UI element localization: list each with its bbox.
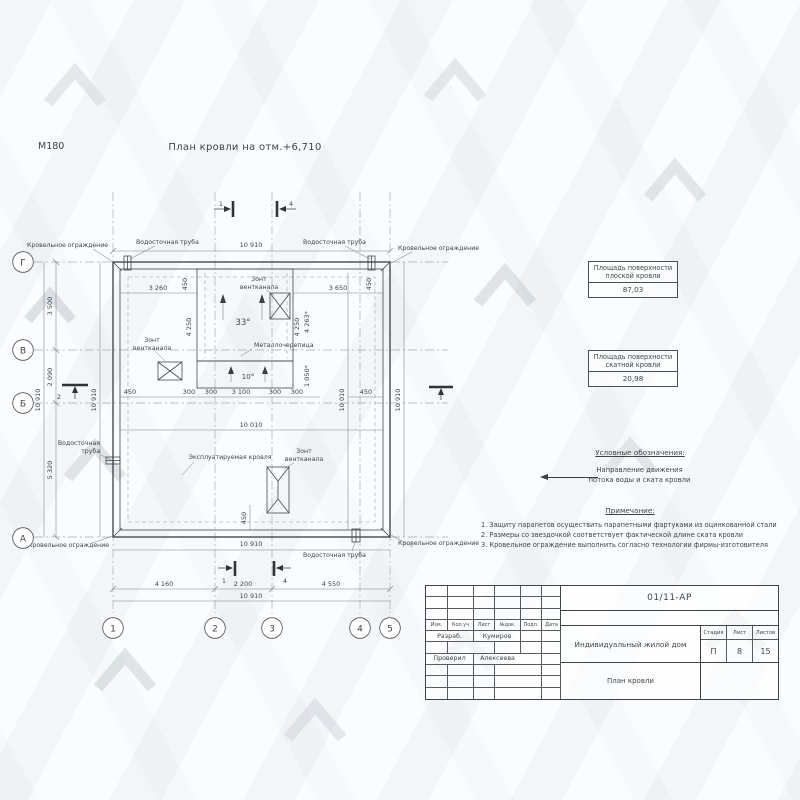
- section-mark-4-top: 4: [289, 200, 293, 208]
- sheets-header: Листов: [753, 626, 778, 639]
- axis-row-b: Б: [20, 400, 26, 410]
- title-block-revision-table: Изм. Кол.уч Лист №док. Подп. Дата Разраб…: [426, 586, 561, 699]
- tb-col-data: Дата: [542, 620, 561, 631]
- tb-spacer: [561, 611, 778, 626]
- note-item: 2. Размеры со звездочкой соответствует ф…: [481, 531, 781, 541]
- dim-band-star: 1 050*: [303, 364, 311, 387]
- axis-col-3: 3: [269, 625, 275, 635]
- notes-list: 1. Защиту парапетов осуществить парапетн…: [481, 521, 781, 551]
- label-fence-br: Кровельное ограждение: [398, 540, 479, 547]
- tb-col-koluch: Кол.уч: [448, 620, 474, 631]
- label-vent2-l1: Зонт: [144, 337, 160, 344]
- dim-bottom-inner: 10 910: [240, 540, 263, 548]
- axis-col-2: 2: [212, 625, 218, 635]
- dim-right-total: 10 910: [394, 389, 402, 412]
- flat-roof-area-box: Площадь поверхности плоской кровли 87,03: [588, 261, 678, 298]
- dim-vb: 2 090: [46, 368, 54, 387]
- stage-table: Стадия Лист Листов П 8 15: [701, 626, 778, 699]
- dim-300: 300: [183, 388, 195, 396]
- dim-300: 300: [291, 388, 303, 396]
- dim-left-inner: 10 910: [90, 389, 98, 412]
- dim-left-total: 10 910: [34, 389, 42, 412]
- label-vent1-l2: вентканала: [240, 284, 278, 291]
- label-metal-tile: Металлочерепица: [254, 342, 314, 349]
- label-pipe-br: Водосточная труба: [303, 551, 366, 559]
- dim-inner-width: 10 010: [240, 421, 263, 429]
- label-fence-bl: Кровельное ограждение: [28, 542, 109, 549]
- title-block-main: 01/11-АР Индивидуальный жилой дом План к…: [561, 586, 778, 699]
- pitched-roof-area-title-l2: скатной кровли: [590, 361, 676, 369]
- label-fence-tl: Кровельное ограждение: [27, 242, 108, 249]
- dim-bottom-set: 450: [240, 512, 248, 524]
- flat-roof-area-value: 87,03: [589, 283, 677, 297]
- slope-10: 10°: [242, 373, 254, 381]
- section-mark-4-bottom: 4: [283, 577, 287, 585]
- label-pipe-tl: Водосточная труба: [136, 238, 199, 246]
- dim-3100: 3 100: [232, 388, 251, 396]
- pitched-roof-area-box: Площадь поверхности скатной кровли 20,98: [588, 350, 678, 387]
- pitched-roof-area-value: 20,98: [589, 372, 677, 386]
- document-number: 01/11-АР: [561, 586, 778, 611]
- tb-col-list: Лист: [474, 620, 495, 631]
- vent-hood-bottom: [267, 467, 289, 513]
- sheets-value: 15: [753, 640, 778, 662]
- tb-col-izm: Изм.: [426, 620, 448, 631]
- section-mark-2-left: 2: [57, 393, 61, 401]
- label-pipe-tr: Водосточная труба: [303, 238, 366, 246]
- label-exploited-roof: Эксплуатируемая кровля: [189, 454, 272, 461]
- stage-header: Стадия: [701, 626, 727, 639]
- tb-col-podp: Подп.: [521, 620, 542, 631]
- label-vent1-l1: Зонт: [251, 276, 267, 283]
- tb-role-developed: Разраб.: [426, 631, 474, 642]
- sheet-value: 8: [727, 640, 753, 662]
- parapet-walls: [113, 262, 390, 537]
- dim-300: 300: [269, 388, 281, 396]
- sheet-header: Лист: [727, 626, 753, 639]
- label-pipe-left-l1: Водосточная: [58, 440, 100, 447]
- dim-450: 450: [124, 388, 136, 396]
- project-name: Индивидуальный жилой дом: [561, 626, 700, 663]
- drainpipe-symbols: [106, 256, 375, 542]
- dim-inner-height: 10 010: [338, 389, 346, 412]
- dim-set-left: 450: [181, 278, 189, 290]
- section-mark-1-bottom: 1: [222, 577, 226, 585]
- tb-name-checked: Алексеева: [474, 654, 521, 665]
- dim-slope-star: 4 263*: [303, 310, 311, 333]
- section-mark-1-top: 1: [219, 200, 223, 208]
- label-vent2-l2: вентканала: [133, 345, 171, 352]
- dim-gv: 3 500: [46, 297, 54, 316]
- dim-bottom-total: 10 910: [240, 592, 263, 600]
- title-block: Изм. Кол.уч Лист №док. Подп. Дата Разраб…: [425, 585, 779, 700]
- notes-heading: Примечание:: [555, 506, 705, 515]
- label-vent3-l2: вентканала: [285, 456, 323, 463]
- flat-roof-area-title-l1: Площадь поверхности: [590, 264, 676, 272]
- dim-ba: 5 320: [46, 461, 54, 480]
- axis-col-5: 5: [387, 625, 393, 635]
- dim-top-total: 10 910: [240, 241, 263, 249]
- dim-bay1: 4 160: [155, 580, 174, 588]
- dim-450: 450: [360, 388, 372, 396]
- tb-name-developed: Кумиров: [474, 631, 521, 642]
- dim-top-left: 3 260: [149, 284, 168, 292]
- legend-heading: Условные обозначения:: [570, 448, 710, 457]
- sheet-title: План кровли: [561, 663, 700, 699]
- pitched-roof-area-title-l1: Площадь поверхности: [590, 353, 676, 361]
- slope-arrows: [220, 294, 268, 382]
- pitched-roof-area-title: Площадь поверхности скатной кровли: [589, 351, 677, 372]
- label-pipe-left-l2: труба: [81, 447, 100, 455]
- dim-slope-left: 4 250: [185, 318, 193, 337]
- vent-hood-left: [158, 362, 182, 380]
- note-item: 1. Защиту парапетов осуществить парапетн…: [481, 521, 781, 531]
- flow-direction-arrow: [540, 473, 598, 481]
- dim-set-right: 450: [365, 278, 373, 290]
- axis-row-v: В: [20, 347, 26, 357]
- axis-col-1: 1: [110, 625, 116, 635]
- tb-col-dok: №док.: [495, 620, 521, 631]
- label-fence-tr: Кровельное ограждение: [398, 245, 479, 252]
- slope-33: 33°: [235, 318, 250, 328]
- tb-role-checked: Проверил: [426, 654, 474, 665]
- axis-row-a: А: [20, 535, 27, 545]
- label-vent3-l1: Зонт: [296, 448, 312, 455]
- dim-300: 300: [205, 388, 217, 396]
- note-item: 3. Кровельное ограждение выполнить согла…: [481, 541, 781, 551]
- axis-col-4: 4: [357, 625, 363, 635]
- dim-slope-right: 4 250: [293, 318, 301, 337]
- dim-bay2: 2 200: [234, 580, 253, 588]
- dim-top-right: 3 650: [329, 284, 348, 292]
- axis-row-g: Г: [20, 259, 26, 269]
- flat-roof-area-title: Площадь поверхности плоской кровли: [589, 262, 677, 283]
- flat-roof-area-title-l2: плоской кровли: [590, 272, 676, 280]
- vent-hood-top: [270, 293, 290, 319]
- dim-bay3: 4 550: [322, 580, 341, 588]
- stage-value: П: [701, 640, 727, 662]
